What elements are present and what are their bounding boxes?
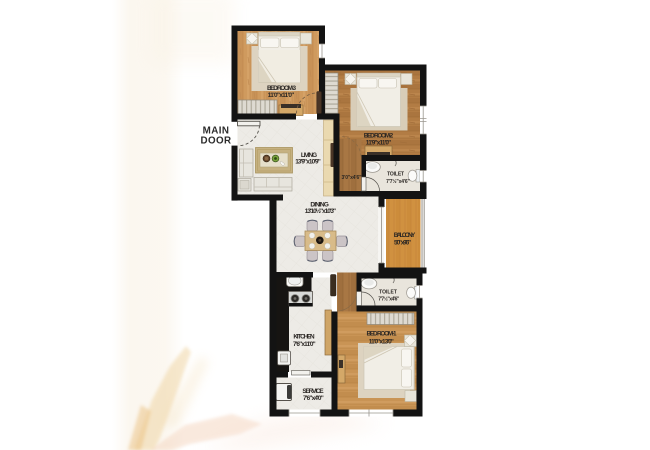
svg-text:11'0"x13'0": 11'0"x13'0"	[369, 339, 394, 346]
svg-text:KITCHEN: KITCHEN	[293, 334, 315, 341]
svg-text:5'0"x9'6": 5'0"x9'6"	[394, 239, 411, 246]
svg-text:11'0"x11'0": 11'0"x11'0"	[268, 92, 295, 99]
svg-text:TOILET: TOILET	[379, 290, 397, 296]
svg-text:13'9"x10'9": 13'9"x10'9"	[295, 159, 321, 166]
svg-text:3'0"x4'6": 3'0"x4'6"	[342, 175, 363, 181]
svg-text:BED ROOM-3: BED ROOM-3	[267, 85, 296, 92]
svg-text:BALCONY: BALCONY	[394, 232, 416, 239]
svg-text:SERVICE: SERVICE	[302, 388, 324, 395]
svg-text:7'6"x4'0": 7'6"x4'0"	[303, 395, 324, 402]
svg-text:DOOR: DOOR	[201, 136, 232, 147]
svg-text:11'9"x11'0": 11'9"x11'0"	[366, 140, 391, 147]
svg-text:BED ROOM-2: BED ROOM-2	[364, 133, 394, 140]
svg-text:7'6"x11'0": 7'6"x11'0"	[293, 341, 316, 348]
svg-text:13'10½"x10'3": 13'10½"x10'3"	[305, 207, 336, 215]
svg-text:7'7½"x4'6": 7'7½"x4'6"	[386, 178, 410, 185]
svg-text:BED ROOM-1: BED ROOM-1	[367, 331, 397, 338]
svg-text:7'7½"x4'6": 7'7½"x4'6"	[378, 296, 400, 303]
svg-text:TOILET: TOILET	[387, 172, 404, 178]
